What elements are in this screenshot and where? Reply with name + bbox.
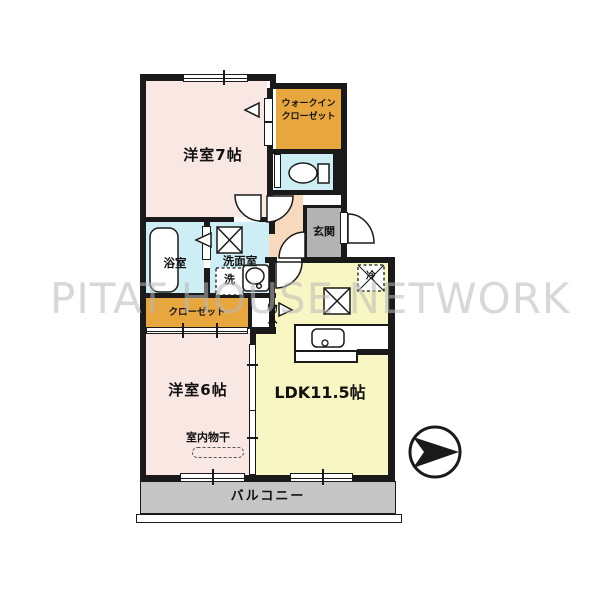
washing-machine-icon [217,227,242,253]
sink-icon [243,265,269,291]
indoor-drying-marker [192,447,244,458]
bedroom7-label: 洋室7帖 [158,147,268,164]
washroom-label: 洗面室 [208,255,272,268]
walk-in-closet-label-line2: クローゼット [276,112,341,122]
entrance-label: 玄関 [305,226,343,239]
toilet-icon [289,163,329,183]
walk-in-closet-label-line1: ウォークイン [276,99,341,109]
ldk-label: LDK11.5帖 [250,384,390,402]
cabinet-icon [324,288,350,314]
refrigerator-label: 冷 [358,271,384,283]
north-arrow-icon [410,427,460,477]
floorplan: 洋室7帖 ウォークイン クローゼット 玄関 浴室 洗面室 洗 クローゼット 物入… [0,0,600,600]
bath-label: 浴室 [146,257,204,270]
washer-space-label: 洗 [216,274,243,287]
indoor-drying-label: 室内物干 [168,432,248,445]
bedroom6-label: 洋室6帖 [146,382,250,399]
plan-symbols [0,0,600,600]
closet-label: クローゼット [146,308,248,319]
storage-label: 物入 [252,297,276,330]
kitchen-counter-icon [295,325,389,362]
balcony-label: バルコニー [140,490,396,505]
